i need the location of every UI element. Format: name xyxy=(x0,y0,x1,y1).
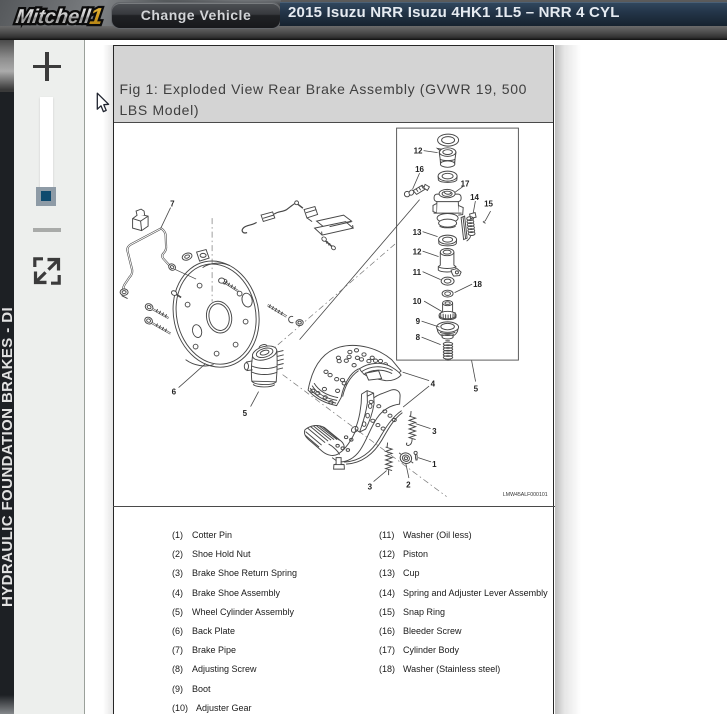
svg-text:3: 3 xyxy=(432,427,437,436)
svg-text:16: 16 xyxy=(415,165,424,174)
svg-text:14: 14 xyxy=(470,193,479,202)
svg-text:1: 1 xyxy=(432,460,437,469)
svg-text:4: 4 xyxy=(431,380,436,389)
svg-text:8: 8 xyxy=(416,333,421,342)
svg-text:18: 18 xyxy=(473,280,482,289)
svg-text:5: 5 xyxy=(243,409,248,418)
svg-text:Mitchell: Mitchell xyxy=(14,6,92,28)
svg-text:7: 7 xyxy=(170,200,175,209)
svg-text:6: 6 xyxy=(172,388,177,397)
svg-text:3: 3 xyxy=(368,483,373,492)
svg-text:9: 9 xyxy=(416,317,421,326)
svg-text:17: 17 xyxy=(461,180,470,189)
svg-text:10: 10 xyxy=(413,297,422,306)
svg-text:12: 12 xyxy=(414,147,423,156)
svg-text:1: 1 xyxy=(88,3,104,29)
svg-text:5: 5 xyxy=(474,385,479,394)
svg-text:LMW45ALF000101: LMW45ALF000101 xyxy=(503,492,548,498)
svg-text:11: 11 xyxy=(413,268,422,277)
svg-text:15: 15 xyxy=(484,200,493,209)
svg-text:2: 2 xyxy=(406,481,411,490)
svg-text:12: 12 xyxy=(413,248,422,257)
svg-text:13: 13 xyxy=(413,228,422,237)
